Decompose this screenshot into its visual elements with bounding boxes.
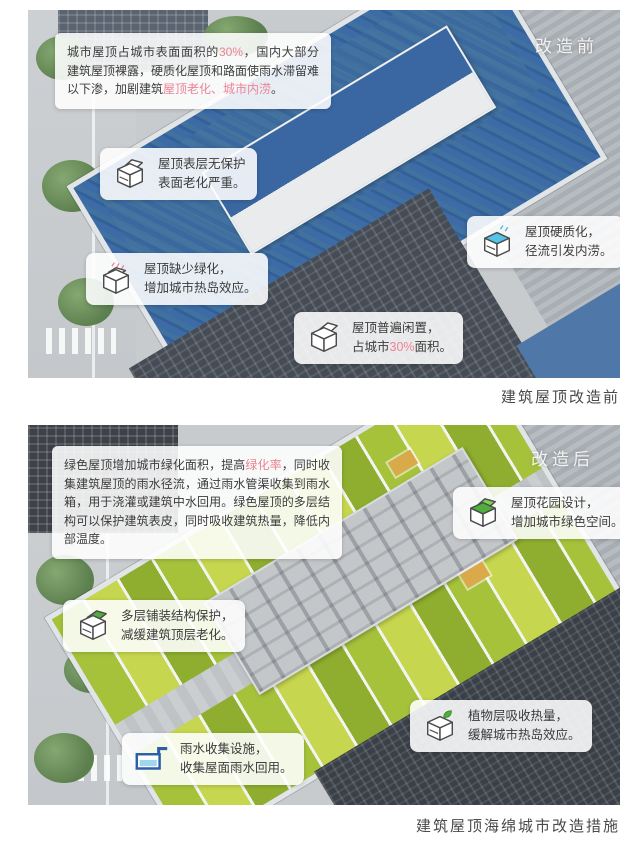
intro-note-after: 绿色屋顶增加城市绿化面积，提高绿化率，同时收集建筑屋顶的雨水径流，通过雨水管渠收… bbox=[52, 446, 342, 559]
crosswalk bbox=[46, 328, 116, 354]
callout-roof-garden: 屋顶花园设计， 增加城市绿色空间。 bbox=[453, 487, 620, 539]
callout-text: 雨水收集设施， 收集屋面雨水回用。 bbox=[180, 740, 293, 778]
intro-text: 绿色屋顶增加城市绿化面积，提高 bbox=[64, 458, 245, 472]
cube-garden-icon bbox=[464, 496, 502, 530]
rain-tank-icon bbox=[133, 742, 171, 776]
intro-note-before: 城市屋顶占城市表面面积的30%，国内大部分建筑屋顶裸露，硬质化屋顶和路面使雨水滞… bbox=[55, 33, 331, 109]
callout-text: 多层铺装结构保护， 减缓建筑顶层老化。 bbox=[121, 607, 234, 645]
highlight-green-rate: 绿化率 bbox=[245, 458, 281, 472]
callout-hardened-roof: 屋顶硬质化， 径流引发内涝。 bbox=[467, 216, 620, 268]
cube-leaf-icon bbox=[421, 709, 459, 743]
cube-open-icon bbox=[305, 321, 343, 355]
callout-text: 屋顶硬质化， 径流引发内涝。 bbox=[525, 223, 613, 261]
intro-text: 城市屋顶占城市表面面积的 bbox=[67, 45, 219, 59]
callout-text: 屋顶花园设计， 增加城市绿色空间。 bbox=[511, 494, 620, 532]
callout-plant-layer: 植物层吸收热量， 缓解城市热岛效应。 bbox=[410, 700, 592, 752]
callout-text: 屋顶缺少绿化， 增加城市热岛效应。 bbox=[144, 260, 257, 298]
callout-rainwater-collection: 雨水收集设施， 收集屋面雨水回用。 bbox=[122, 733, 304, 785]
infographic-page: { "panel_before": { "watermark": "改造前", … bbox=[0, 0, 634, 852]
callout-layered-paving: 多层铺装结构保护， 减缓建筑顶层老化。 bbox=[63, 600, 245, 652]
tree-cluster bbox=[34, 733, 94, 783]
highlight-aging-flood: 屋顶老化、城市内涝 bbox=[163, 82, 271, 96]
callout-text: 屋顶表层无保护 表面老化严重。 bbox=[158, 155, 246, 193]
highlight-30pct: 30% bbox=[219, 45, 243, 59]
cube-flap-icon bbox=[111, 157, 149, 191]
callout-roof-aging: 屋顶表层无保护 表面老化严重。 bbox=[100, 148, 257, 200]
callout-roof-idle: 屋顶普遍闲置， 占城市30%面积。 bbox=[294, 312, 463, 364]
cube-heat-icon bbox=[97, 262, 135, 296]
caption-before: 建筑屋顶改造前 bbox=[28, 386, 620, 407]
callout-text: 植物层吸收热量， 缓解城市热岛效应。 bbox=[468, 707, 581, 745]
callout-text: 屋顶普遍闲置， 占城市30%面积。 bbox=[352, 319, 452, 357]
highlight-30pct-area: 30% bbox=[390, 340, 415, 354]
watermark-after: 改造后 bbox=[531, 445, 594, 470]
aerial-photo-after: 改造后 绿色屋顶增加城市绿化面积，提高绿化率，同时收集建筑屋顶的雨水径流，通过雨… bbox=[28, 425, 620, 805]
callout-no-greenery: 屋顶缺少绿化， 增加城市热岛效应。 bbox=[86, 253, 268, 305]
intro-text: 。 bbox=[271, 82, 283, 96]
cube-water-icon bbox=[478, 225, 516, 259]
caption-after: 建筑屋顶海绵城市改造措施 bbox=[28, 815, 620, 836]
watermark-before: 改造前 bbox=[535, 32, 598, 57]
cube-layers-icon bbox=[74, 609, 112, 643]
aerial-photo-before: 改造前 城市屋顶占城市表面面积的30%，国内大部分建筑屋顶裸露，硬质化屋顶和路面… bbox=[28, 10, 620, 378]
